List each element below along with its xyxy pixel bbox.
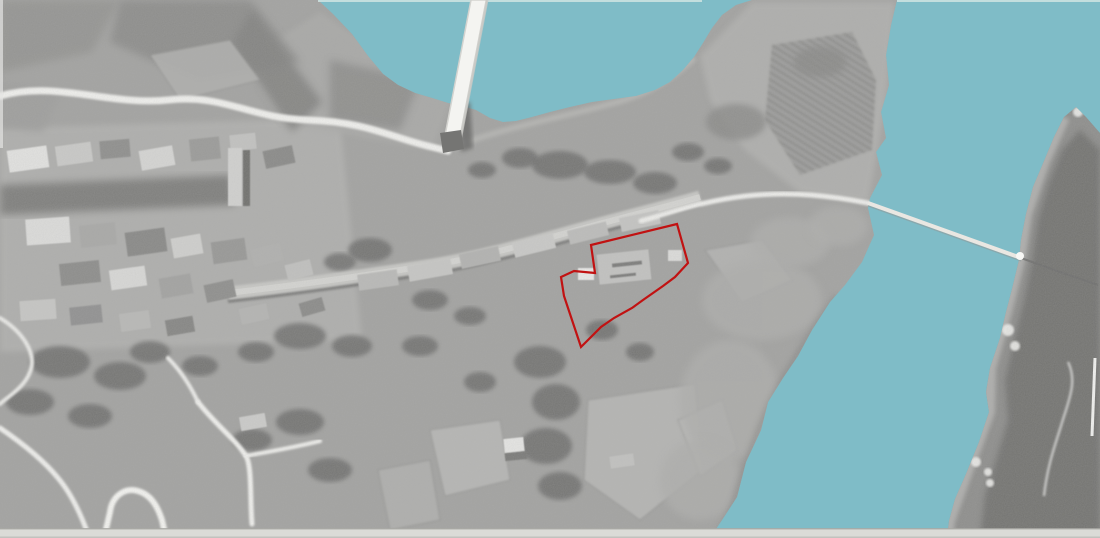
photo-top-edge-glint	[897, 0, 1100, 2]
photo-bottom-edge-line	[0, 528, 1100, 530]
photo-left-edge-glint	[0, 0, 3, 148]
photo-top-edge-glint	[318, 0, 702, 2]
bridge-landing-pier	[1016, 252, 1024, 260]
pier-end-cap	[440, 130, 464, 153]
aerial-photo-canvas	[0, 0, 1100, 538]
aerial-site-map	[0, 0, 1100, 538]
